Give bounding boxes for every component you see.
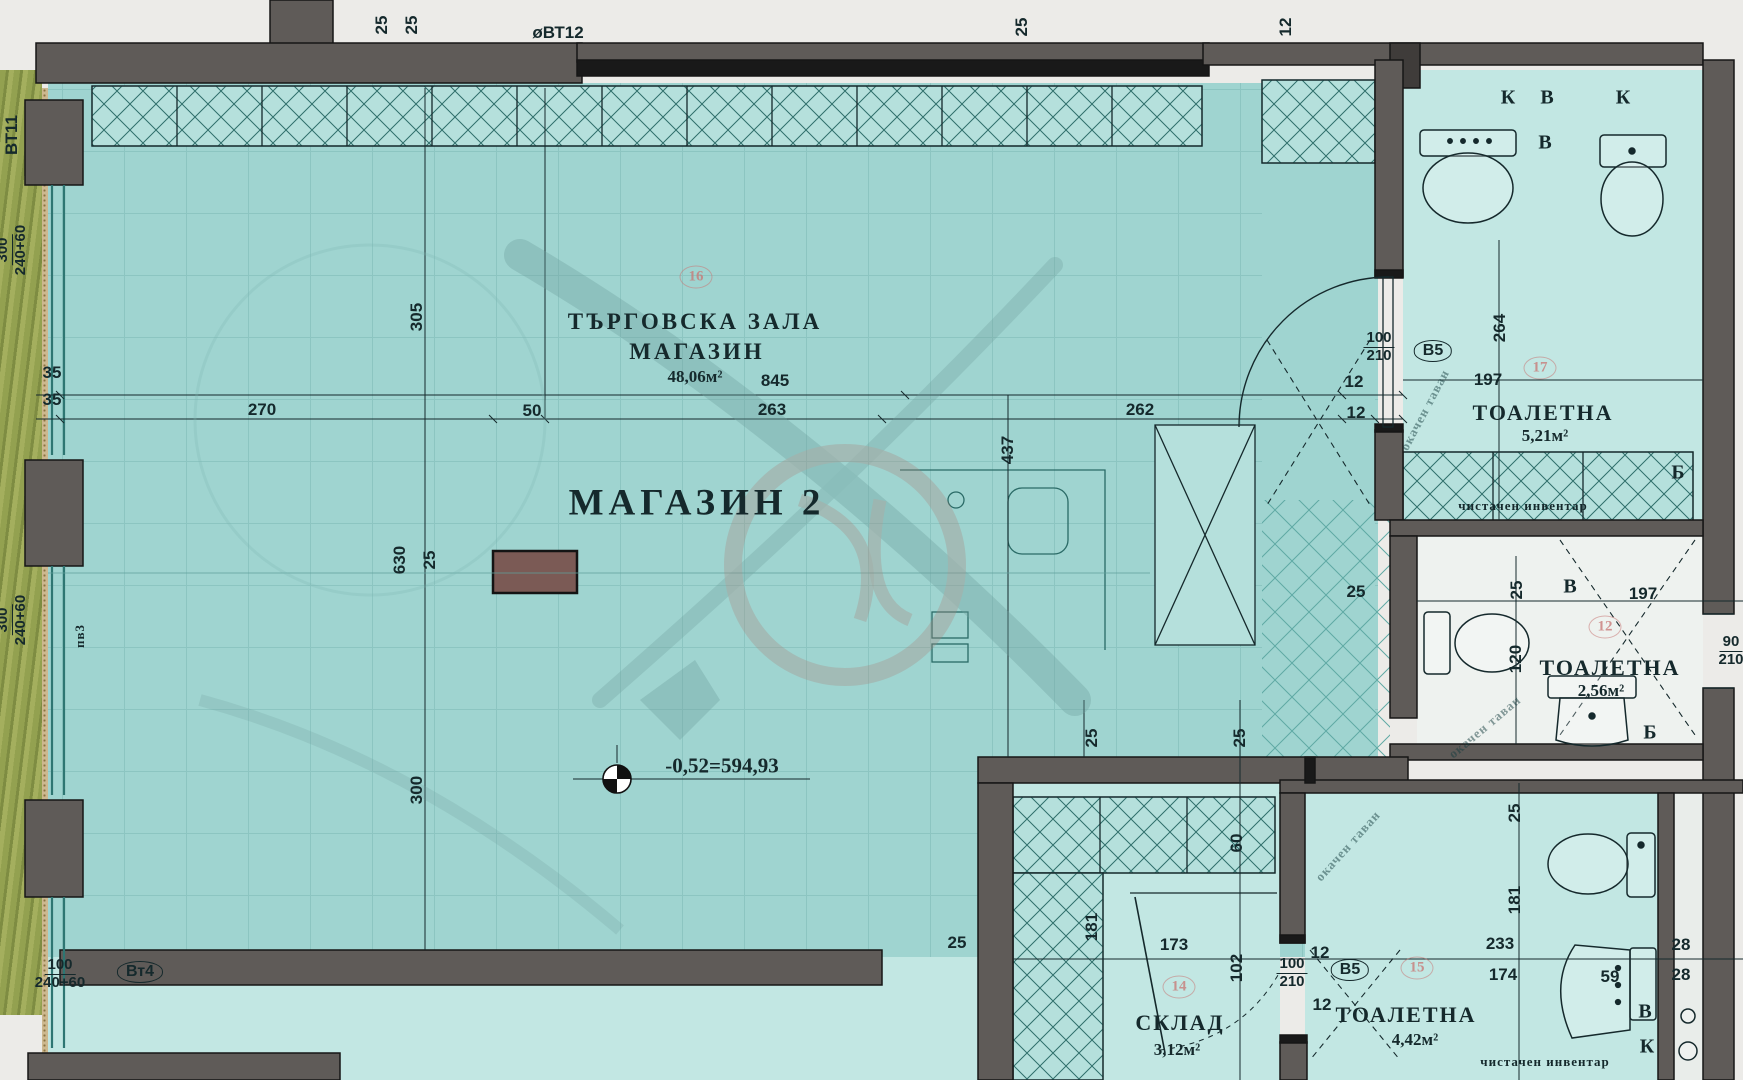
- dimension-lines: [36, 88, 1743, 1080]
- floor-plan: 2525øВТ122512ВТ11пв335352705084526326212…: [0, 0, 1743, 1080]
- watermark: [195, 245, 1075, 930]
- column: [493, 551, 577, 593]
- elevation-benchmark: [603, 765, 631, 793]
- window-lines: [52, 185, 64, 1048]
- plan-geometry: [0, 0, 1743, 1080]
- hatch-areas: [92, 80, 1693, 1080]
- sanitary-fixtures: [1420, 130, 1697, 1060]
